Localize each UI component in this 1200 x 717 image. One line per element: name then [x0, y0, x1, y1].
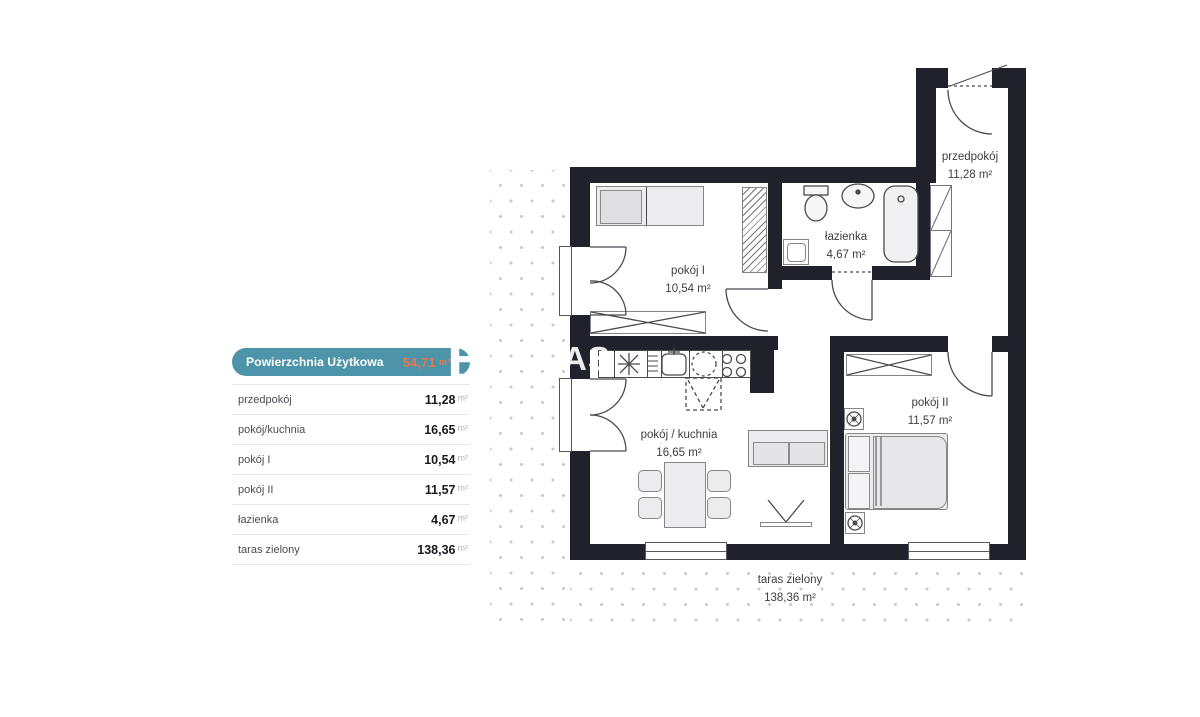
wall-kitchen-room2-divider	[830, 336, 844, 544]
room-name: taras zielony	[758, 571, 823, 589]
room-area: 138,36 m²	[758, 589, 823, 607]
chair	[707, 470, 731, 492]
wardrobe-hall-cell	[930, 230, 952, 277]
entry-door-arc	[948, 90, 992, 134]
terrace-dots-left	[490, 170, 570, 622]
wall-kitchen-stub	[750, 350, 774, 393]
bed-room2-mattress	[873, 436, 947, 509]
chair	[707, 497, 731, 519]
balcony1-door-arc	[590, 281, 626, 315]
tv-stand	[760, 522, 812, 527]
bed-room2-pillow	[848, 436, 870, 472]
wardrobe-room1-side	[742, 187, 767, 273]
bed-room2	[845, 433, 948, 510]
summary-title: Powierzchnia Użytkowa	[246, 348, 383, 376]
row-label: taras zielony	[232, 544, 300, 556]
fridge-dashed-box	[686, 378, 721, 410]
bathtub-drain	[898, 196, 904, 202]
wall-bath-bottom-left	[782, 266, 832, 280]
wall-right	[1008, 68, 1026, 560]
row-label: pokój I	[232, 454, 270, 466]
bed-room1-divider	[646, 187, 647, 225]
row-label: łazienka	[232, 514, 278, 526]
sill-balcony-room1	[559, 246, 572, 316]
summary-total: 54,71 m²	[403, 348, 450, 377]
row-label: pokój II	[232, 484, 273, 496]
bed-room1	[596, 186, 704, 226]
room-name: pokój / kuchnia	[641, 426, 718, 444]
row-value: 16,65m²	[424, 423, 470, 437]
room-name: łazienka	[825, 228, 867, 246]
room-label-pokoj2: pokój II 11,57 m²	[908, 394, 953, 430]
nightstand	[845, 512, 865, 534]
table-row: pokój II 11,57m²	[232, 475, 470, 505]
room-label-pokoj-kuchnia: pokój / kuchnia 16,65 m²	[641, 426, 718, 462]
table-row: przedpokój 11,28m²	[232, 385, 470, 415]
window-kitchen	[645, 542, 727, 560]
tv-icon	[768, 500, 804, 522]
room-name: pokój I	[665, 262, 710, 280]
wall-top-main	[570, 167, 936, 183]
row-value: 11,28m²	[425, 393, 470, 407]
room-area: 4,67 m²	[825, 246, 867, 264]
counter-divider	[689, 351, 690, 377]
chair	[638, 470, 662, 492]
wardrobe-hall	[930, 185, 952, 277]
balcony1-door-arc	[590, 247, 626, 283]
kitchen-counter	[598, 350, 751, 378]
room-area: 16,65 m²	[641, 444, 718, 462]
wall-rooms-top-mid	[830, 336, 948, 352]
row-value: 138,36m²	[417, 543, 470, 557]
row-value: 10,54m²	[424, 453, 470, 467]
balcony2-door-arc	[590, 415, 626, 451]
wall-bottom-a	[570, 544, 645, 560]
washing-machine	[783, 239, 809, 265]
row-value: 11,57m²	[425, 483, 470, 497]
wall-entry-left	[916, 68, 948, 88]
wall-left-a	[570, 167, 590, 247]
wardrobe-room2	[846, 354, 932, 376]
toilet-tank	[804, 186, 828, 195]
balcony2-door-arc	[590, 379, 626, 415]
room-area: 11,28 m²	[942, 166, 998, 184]
area-summary-header: Powierzchnia Użytkowa 54,71 m²	[232, 348, 470, 376]
room2-door-arc	[948, 352, 992, 396]
bathtub	[884, 186, 918, 262]
room-label-lazienka: łazienka 4,67 m²	[825, 228, 867, 264]
counter-divider	[661, 351, 662, 377]
sofa-cushion	[753, 442, 789, 465]
chair	[638, 497, 662, 519]
table-row: pokój/kuchnia 16,65m²	[232, 415, 470, 445]
wardrobe-hall-cell	[930, 185, 952, 231]
toilet-bowl	[805, 195, 827, 221]
floorplan-page: przedpokój 11,28 m² łazienka 4,67 m² pok…	[0, 0, 1200, 717]
nightstand	[844, 408, 864, 430]
room-label-przedpokoj: przedpokój 11,28 m²	[942, 148, 998, 184]
bath-sink-tap	[856, 190, 860, 194]
row-value: 4,67m²	[431, 513, 470, 527]
sill-balcony-kitchen	[559, 378, 572, 452]
sofa-cushion	[789, 442, 825, 465]
wardrobe-room1-bottom	[590, 311, 706, 334]
washing-machine-drum	[787, 243, 806, 262]
bath-door-arc	[832, 280, 872, 320]
wall-room1-bath-divider	[768, 167, 782, 289]
table-row: pokój I 10,54m²	[232, 445, 470, 475]
counter-divider	[614, 351, 615, 377]
bed-room2-pillow	[848, 473, 870, 509]
wall-rooms-top-left	[570, 336, 778, 350]
room-area: 10,54 m²	[665, 280, 710, 298]
room-name: pokój II	[908, 394, 953, 412]
wall-bottom-b	[727, 544, 908, 560]
room-area: 11,57 m²	[908, 412, 953, 430]
table-row: łazienka 4,67m²	[232, 505, 470, 535]
wall-rooms-top-right	[992, 336, 1008, 352]
area-summary-table: przedpokój 11,28m² pokój/kuchnia 16,65m²…	[232, 384, 470, 565]
bath-sink	[842, 184, 874, 208]
bed-room1-pillow	[600, 190, 642, 224]
room1-door-arc	[726, 289, 768, 331]
room-label-pokoj1: pokój I 10,54 m²	[665, 262, 710, 298]
wall-bath-bottom-right	[872, 266, 916, 280]
row-label: pokój/kuchnia	[232, 424, 305, 436]
counter-divider	[647, 351, 648, 377]
wall-bath-right	[916, 183, 930, 280]
table-row: taras zielony 138,36m²	[232, 535, 470, 565]
sofa	[748, 430, 828, 467]
counter-divider	[722, 351, 723, 377]
dining-table	[664, 462, 706, 528]
summary-total-unit: m²	[439, 357, 450, 367]
room-label-taras: taras zielony 138,36 m²	[758, 571, 823, 607]
room-name: przedpokój	[942, 148, 998, 166]
wall-bottom-c	[990, 544, 1026, 560]
window-room2	[908, 542, 990, 560]
row-label: przedpokój	[232, 394, 292, 406]
